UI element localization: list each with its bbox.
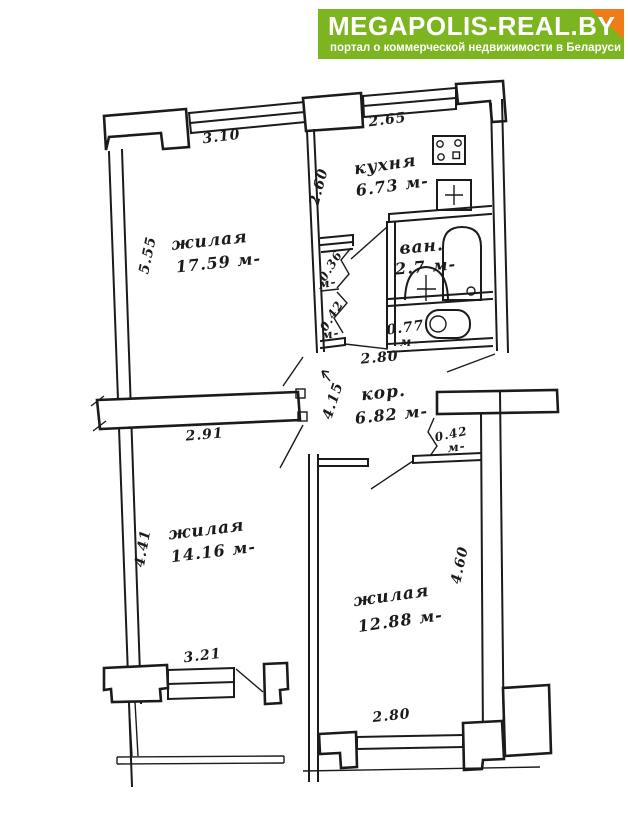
dim-lr-window: 2.80	[371, 706, 412, 726]
dim-kitchen-window: 2.65	[367, 110, 408, 131]
toilet-icon	[426, 310, 470, 338]
closet-right-unit: м-	[446, 439, 466, 455]
living2-door-leaf	[280, 425, 303, 468]
closet-bottom-unit: м-	[320, 326, 341, 343]
stove-icon	[433, 136, 465, 164]
dim-lr-height: 4.60	[448, 545, 472, 586]
living1-door-leaf	[283, 357, 303, 386]
dim-ul-height: 5.55	[136, 235, 160, 276]
floor-plan: 3.10 5.55 жилая 17.59 м- 2.65 2.60 кухня…	[0, 0, 628, 837]
dim-hall-length: 4.15	[320, 380, 347, 421]
exterior-walls	[104, 81, 558, 786]
room-wc-unit: м-	[400, 335, 418, 349]
dim-kitchen-depth: 2.60	[306, 166, 332, 208]
bottom-walls	[104, 663, 540, 771]
bath-door-leaf	[351, 227, 387, 259]
room-corridor-area: 6.82 м-	[354, 401, 429, 428]
living3-door-leaf	[371, 461, 413, 489]
dim-ll-top: 2.91	[184, 425, 224, 444]
entrance-door-leaf	[447, 354, 495, 372]
balcony-door-leaf	[236, 669, 263, 692]
room-living3-name: жилая	[352, 581, 431, 611]
dim-hall-width: 2.80	[359, 348, 399, 367]
room-living3-area: 12.88 м-	[357, 605, 444, 636]
load-bearing-wall	[97, 392, 300, 429]
room-bath-area: 2.7 м-	[393, 254, 457, 278]
dim-ul-window: 3.10	[202, 127, 242, 148]
dim-arrow	[322, 371, 330, 381]
dim-ll-window: 3.21	[183, 646, 223, 667]
room-corridor-name: кор.	[360, 381, 407, 406]
kitchen-sink-icon	[437, 180, 471, 210]
